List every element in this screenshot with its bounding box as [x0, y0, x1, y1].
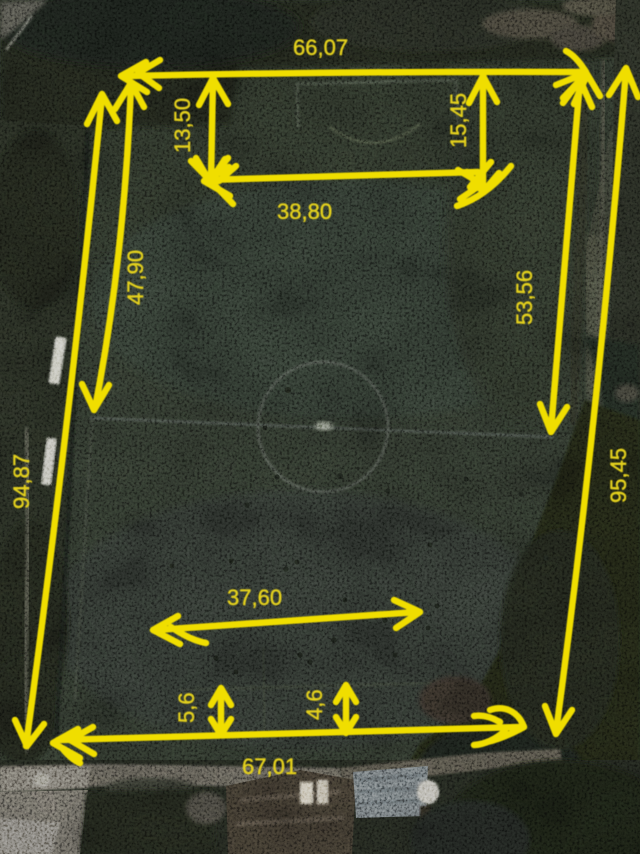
svg-text:94,87: 94,87: [9, 454, 34, 509]
svg-text:38,80: 38,80: [277, 199, 332, 224]
svg-text:66,07: 66,07: [293, 35, 348, 60]
svg-text:47,90: 47,90: [123, 250, 148, 305]
svg-text:13,50: 13,50: [170, 98, 195, 153]
svg-text:95,45: 95,45: [606, 448, 631, 503]
svg-text:67,01: 67,01: [242, 754, 297, 779]
svg-text:53,56: 53,56: [512, 270, 537, 325]
svg-text:5,6: 5,6: [174, 692, 199, 723]
svg-text:37,60: 37,60: [227, 585, 282, 610]
svg-text:15,45: 15,45: [446, 93, 471, 148]
svg-text:4,6: 4,6: [302, 689, 327, 720]
